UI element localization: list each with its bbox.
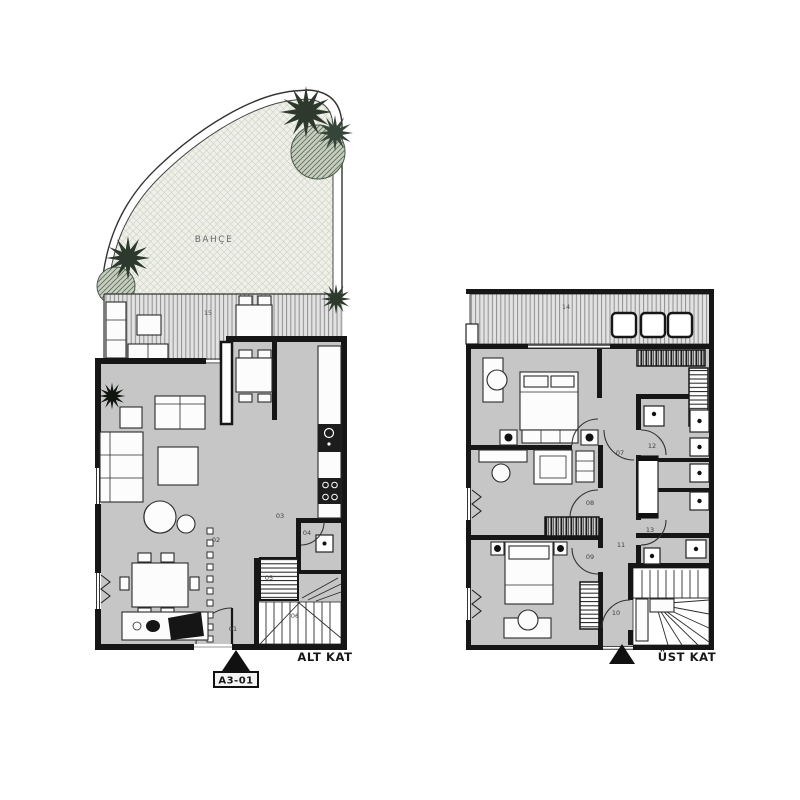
- section-marker-lower: [222, 650, 250, 671]
- room-label-01: 01: [229, 625, 237, 633]
- room-label-04: 04: [303, 529, 311, 537]
- floorplan-page: BAHÇE 15: [0, 0, 800, 800]
- room-label-02: 02: [212, 536, 220, 544]
- kitchen-counter: [318, 346, 341, 518]
- sink-icon: [318, 424, 341, 452]
- side-unit: [576, 451, 594, 482]
- bed-second: [505, 542, 553, 604]
- room-label-06: 06: [291, 612, 299, 620]
- stove-icon: [318, 478, 341, 504]
- tall-cabinet: [221, 342, 232, 424]
- washbasin-icon: [644, 406, 664, 426]
- room-label-08: 08: [586, 499, 594, 507]
- stair-closet: [636, 599, 648, 641]
- side-table: [120, 407, 142, 428]
- master-bed: [520, 372, 578, 443]
- bathtub-icon: [638, 456, 658, 518]
- floor-label-lower: ALT KAT: [297, 650, 352, 664]
- washbasin-icon-2: [644, 548, 660, 564]
- section-tag-box: A3-01: [214, 672, 258, 687]
- tv-console: [122, 612, 208, 640]
- room-label-11: 11: [617, 541, 625, 549]
- sectional-sofa: [100, 432, 143, 502]
- upper-floor-plan: 14: [466, 289, 716, 664]
- room-label-09: 09: [586, 553, 594, 561]
- room-label-05: 05: [265, 574, 273, 582]
- section-tag-label: A3-01: [218, 676, 253, 687]
- wardrobe-bedroom: [580, 582, 599, 629]
- floor-label-upper: ÜST KAT: [658, 649, 716, 664]
- wall-sofa: [155, 396, 205, 429]
- wardrobe-middle: [545, 517, 599, 536]
- coffee-table: [158, 447, 198, 485]
- garden-label: BAHÇE: [195, 235, 234, 245]
- round-table: [177, 515, 195, 533]
- master-desk: [483, 358, 507, 402]
- lower-floor-plan: BAHÇE 15: [95, 86, 353, 687]
- middle-room-furniture: [479, 450, 594, 484]
- stair-landing: [650, 599, 674, 612]
- skylight-icon: [612, 313, 692, 337]
- room-label-03: 03: [276, 512, 284, 520]
- room-label-07: 07: [616, 449, 624, 457]
- dining-table: [120, 553, 199, 617]
- floorplan-canvas: BAHÇE 15: [0, 0, 800, 800]
- armchair: [144, 501, 176, 533]
- terrace-upper: 14: [466, 289, 713, 344]
- stairs-floor-lower: [258, 602, 341, 644]
- room-label-10: 10: [612, 609, 620, 617]
- armchair-middle: [534, 450, 572, 484]
- desk-chair: [492, 464, 510, 482]
- room-label-13: 13: [646, 526, 654, 534]
- terrace-window: [466, 324, 478, 344]
- desk: [479, 450, 527, 462]
- terrace-label-upper: 14: [562, 303, 570, 311]
- garden-area: BAHÇE: [97, 86, 353, 305]
- terrace-label-lower: 15: [204, 309, 212, 317]
- room-label-12: 12: [648, 442, 656, 450]
- wardrobe-top: [637, 350, 705, 366]
